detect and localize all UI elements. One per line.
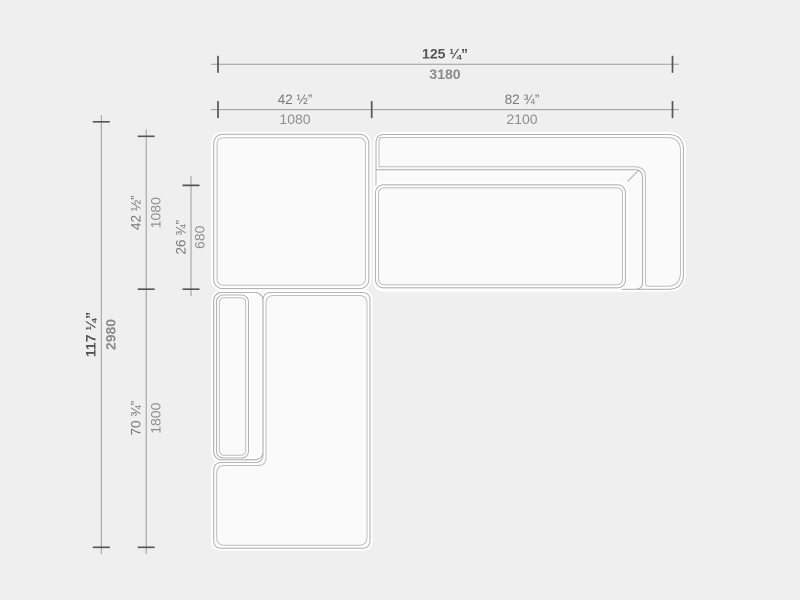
svg-text:82 ¾”: 82 ¾” — [505, 92, 540, 107]
svg-text:42 ½”: 42 ½” — [129, 195, 144, 230]
svg-text:1080: 1080 — [148, 197, 164, 228]
svg-text:3180: 3180 — [429, 66, 460, 82]
svg-text:26 ¾”: 26 ¾” — [174, 219, 189, 254]
svg-text:1800: 1800 — [148, 402, 164, 433]
svg-text:117 ¼”: 117 ¼” — [83, 312, 99, 357]
svg-text:70 ¾”: 70 ¾” — [129, 400, 144, 435]
svg-text:42 ½”: 42 ½” — [278, 92, 313, 107]
svg-text:2100: 2100 — [506, 111, 537, 127]
svg-text:2980: 2980 — [103, 319, 119, 350]
svg-text:1080: 1080 — [279, 111, 310, 127]
svg-text:125 ¼”: 125 ¼” — [422, 46, 468, 62]
svg-text:680: 680 — [192, 225, 208, 249]
